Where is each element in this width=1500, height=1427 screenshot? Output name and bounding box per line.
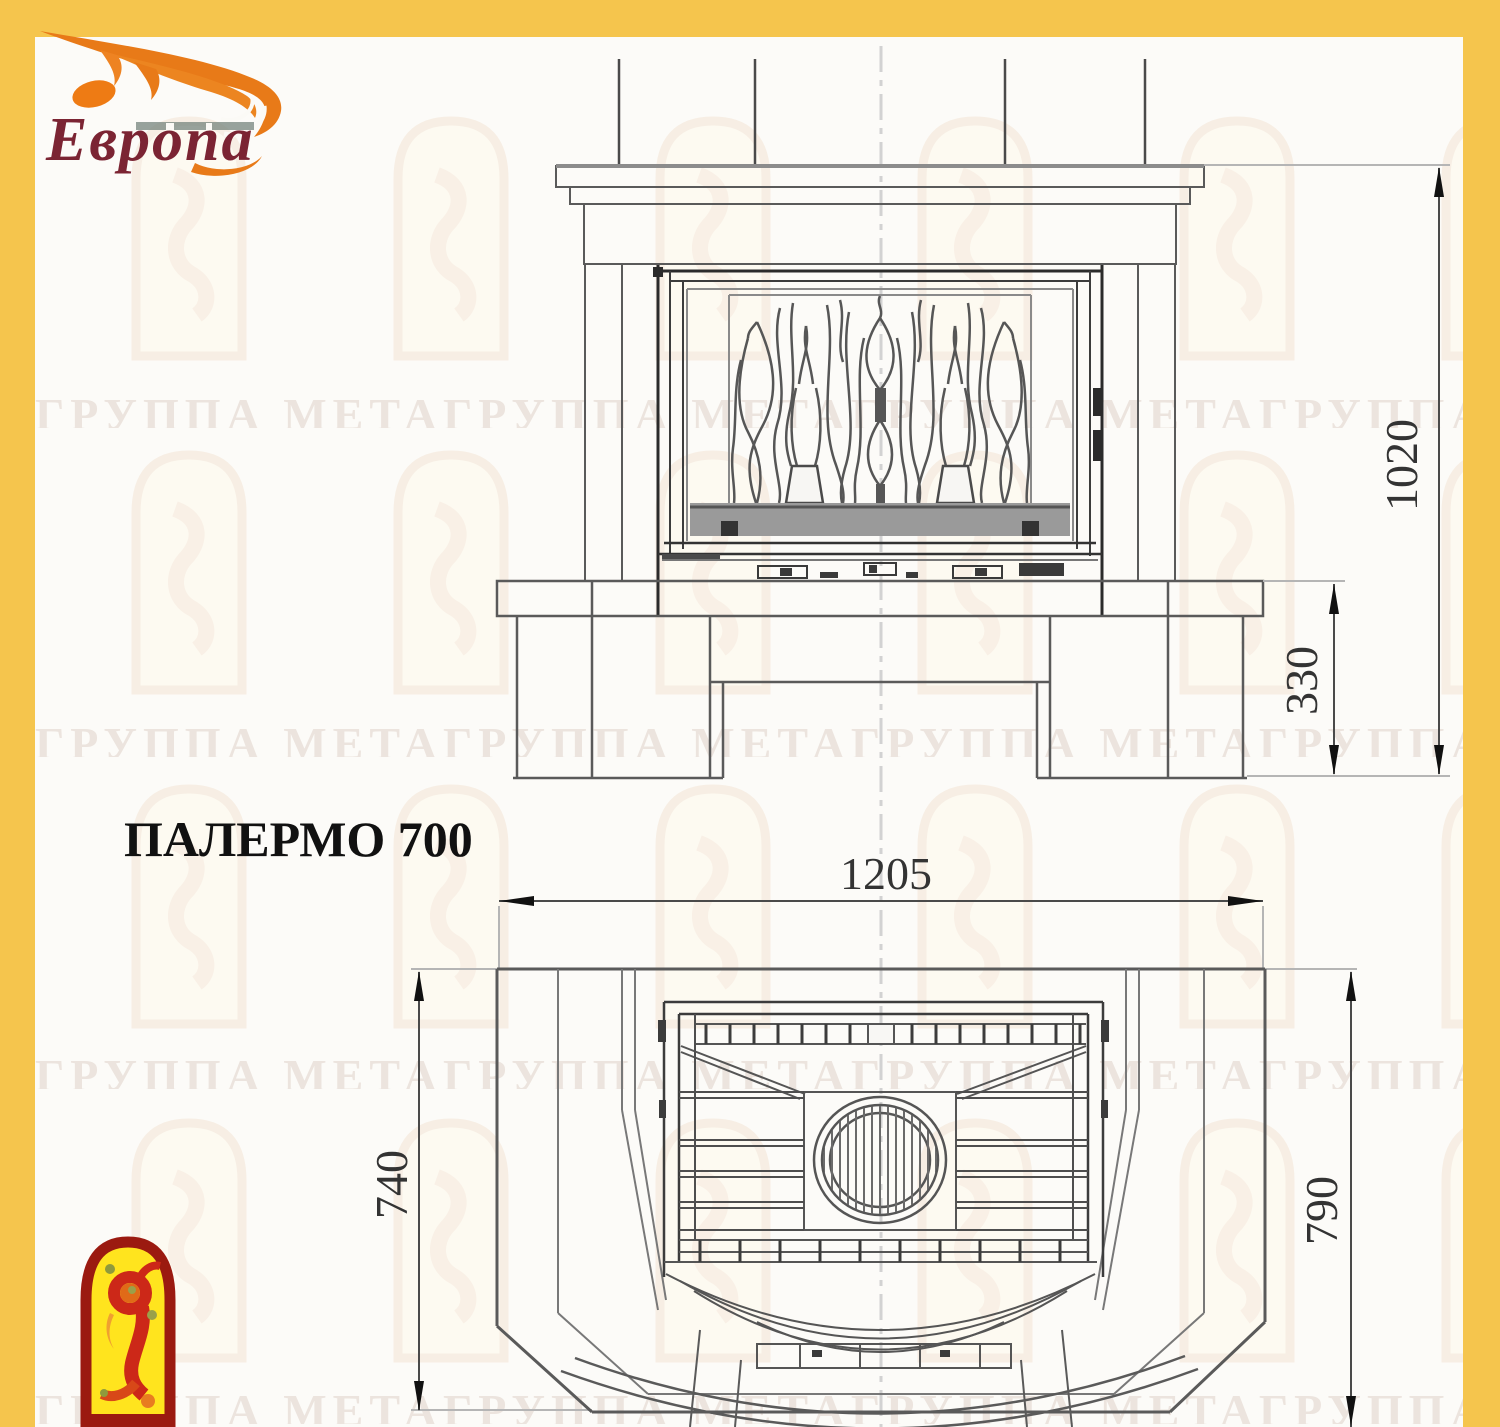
svg-text:330: 330 [1276,646,1327,715]
svg-text:1020: 1020 [1376,419,1427,511]
svg-text:1205: 1205 [840,848,932,899]
svg-text:Европа: Европа [45,106,255,174]
svg-text:740: 740 [366,1150,417,1219]
svg-text:790: 790 [1296,1176,1347,1245]
